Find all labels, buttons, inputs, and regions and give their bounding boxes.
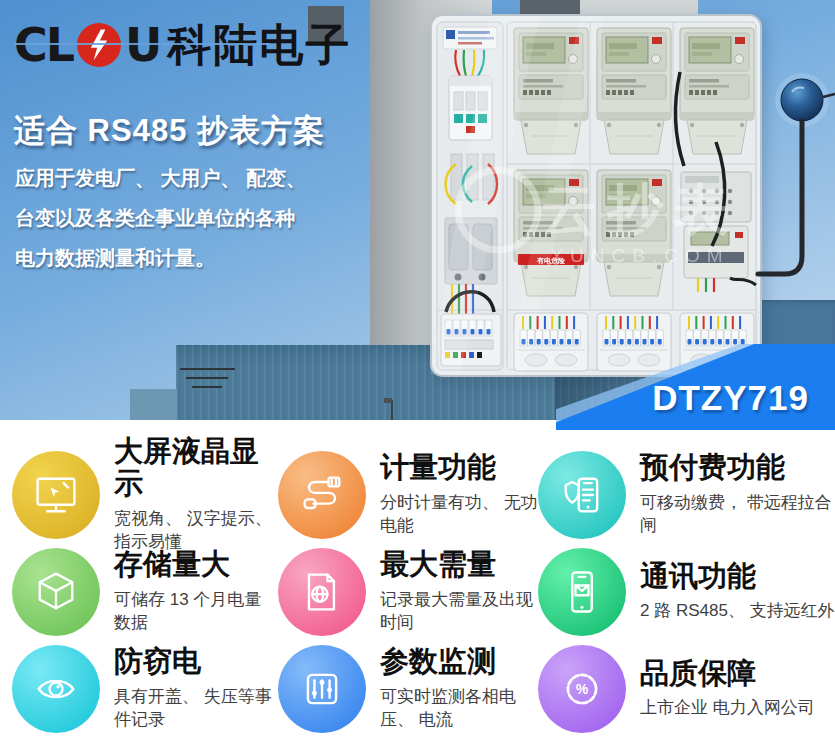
logo-company-name: 科陆电子 [167, 23, 351, 67]
feature-title: 预付费功能 [640, 452, 835, 484]
display-icon [30, 469, 82, 521]
feature-title: 计量功能 [380, 452, 538, 484]
shield-phone-icon [556, 469, 608, 521]
seal-percent-icon: % [556, 663, 608, 715]
feature-title: 大屏液晶显示 [114, 436, 278, 500]
feature-subtitle: 2 路 RS485、 支持远红外 [640, 599, 835, 622]
feature-grid: 大屏液晶显示 宽视角、 汉字提示、 指示易懂 计量功能 分时计量有功、 无功电能 [0, 420, 835, 737]
feature-item-metering: 计量功能 分时计量有功、 无功电能 [278, 446, 538, 543]
terminal-box [597, 313, 671, 371]
hero-desc-line: 台变以及各类企事业单位的各种 [15, 198, 306, 238]
feature-subtitle: 分时计量有功、 无功电能 [380, 491, 538, 537]
feature-title: 存储量大 [114, 549, 278, 581]
clou-logo: CL U 科陆电子 [14, 16, 351, 74]
svg-text:YUNCB.COM: YUNCB.COM [550, 245, 729, 266]
flag-pole [391, 400, 393, 420]
feature-subtitle: 记录最大需量及出现时间 [380, 588, 538, 634]
feature-item-storage: 存储量大 可储存 13 个月电量数据 [12, 543, 278, 640]
logo-letters-u: U [125, 22, 160, 68]
feature-icon-badge [538, 548, 626, 636]
flag [384, 398, 392, 403]
feature-subtitle: 具有开盖、 失压等事件记录 [114, 685, 278, 731]
feature-subtitle: 可移动缴费， 带远程拉合闸 [640, 491, 835, 537]
feature-title: 品质保障 [640, 658, 815, 690]
logo-slit-line [14, 43, 270, 45]
feature-icon-badge: % [538, 645, 626, 733]
meter-cabinet-photo: 有电危险 云抄表 YUNCB.COM [430, 14, 762, 378]
hero-title: 适合 RS485 抄表方案 [14, 110, 325, 152]
feature-item-demand: 最大需量 记录最大需量及出现时间 [278, 543, 538, 640]
feature-subtitle: 可储存 13 个月电量数据 [114, 588, 278, 634]
logo-letters-cl: CL [14, 22, 73, 68]
antenna-line [192, 386, 222, 388]
feature-icon-badge [278, 548, 366, 636]
promo-page: 有电危险 云抄表 YUNCB.COM [0, 0, 835, 737]
cable-icon [296, 469, 348, 521]
feature-item-antitheft: 防窃电 具有开盖、 失压等事件记录 [12, 640, 278, 737]
optical-probe [740, 58, 835, 303]
svg-text:云抄表: 云抄表 [541, 178, 739, 241]
eye-icon [30, 663, 82, 715]
feature-item-prepaid: 预付费功能 可移动缴费， 带远程拉合闸 [538, 446, 835, 543]
feature-title: 防窃电 [114, 646, 278, 678]
hero-desc-line: 应用于发电厂、 大用户、 配变、 [15, 158, 306, 198]
feature-subtitle: 可实时监测各相电压、 电流 [380, 685, 538, 731]
antenna-line [186, 377, 228, 379]
feature-icon-badge [12, 451, 100, 539]
hero-description: 应用于发电厂、 大用户、 配变、 台变以及各类企事业单位的各种 电力数据测量和计… [15, 158, 306, 278]
cube-icon [30, 566, 82, 618]
feature-title: 通讯功能 [640, 561, 835, 593]
feature-icon-badge [12, 548, 100, 636]
antenna-line [180, 368, 235, 370]
building-annex [130, 389, 177, 420]
feature-item-quality: % 品质保障 上市企业 电力入网公司 [538, 640, 835, 737]
logo-lightning-icon [77, 23, 121, 67]
feature-item-monitoring: 参数监测 可实时监测各相电压、 电流 [278, 640, 538, 737]
feature-title: 最大需量 [380, 549, 538, 581]
feature-icon-badge [278, 451, 366, 539]
feature-item-communication: 通讯功能 2 路 RS485、 支持远红外 [538, 543, 835, 640]
hero-desc-line: 电力数据测量和计量。 [15, 238, 306, 278]
svg-text:%: % [576, 681, 589, 697]
book-globe-icon [296, 566, 348, 618]
model-number: DTZY719 [652, 378, 809, 418]
feature-title: 参数监测 [380, 646, 538, 678]
feature-icon-badge [538, 451, 626, 539]
feature-subtitle: 上市企业 电力入网公司 [640, 696, 815, 719]
sliders-icon [296, 663, 348, 715]
feature-icon-badge [278, 645, 366, 733]
three-phase-meter [597, 28, 671, 154]
feature-item-display: 大屏液晶显示 宽视角、 汉字提示、 指示易懂 [12, 446, 278, 543]
feature-icon-badge [12, 645, 100, 733]
phone-mail-icon [556, 566, 608, 618]
